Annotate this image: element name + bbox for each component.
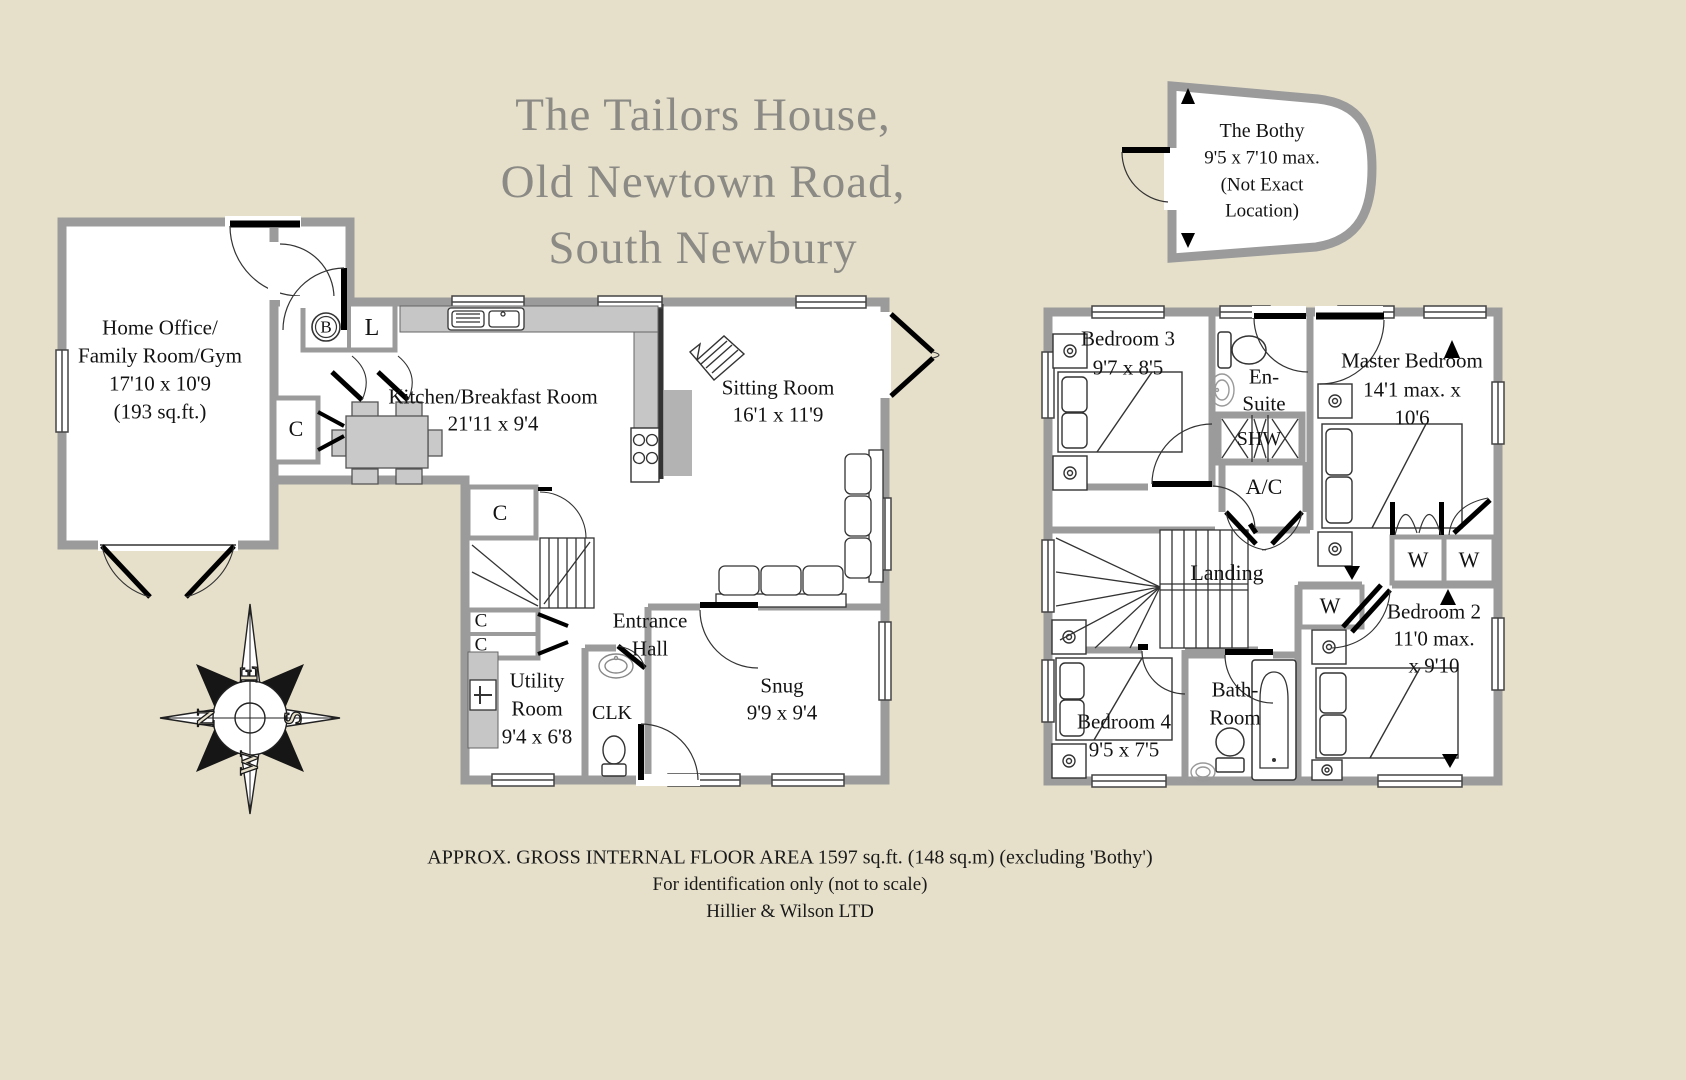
entrance-hall-label: Entrance — [613, 611, 688, 632]
compass-east-label: E — [236, 666, 264, 683]
utility-dims: 9'4 x 6'8 — [502, 727, 573, 748]
property-title-line3: South Newbury — [548, 221, 857, 275]
home-office-label: Family Room/Gym — [78, 346, 242, 367]
home-office-label: Home Office/ — [102, 318, 218, 339]
master-bedroom-dims: 10'6 — [1394, 408, 1429, 429]
home-office-area: (193 sq.ft.) — [114, 402, 207, 423]
home-office-dims: 17'10 x 10'9 — [109, 374, 211, 395]
footer-agent-name: Hillier & Wilson LTD — [706, 901, 874, 923]
bedroom4-label: Bedroom 4 — [1077, 712, 1171, 733]
wardrobe-label: W — [1408, 549, 1429, 571]
floorplan-page: The Tailors House, Old Newtown Road, Sou… — [0, 0, 1686, 1080]
snug-dims: 9'9 x 9'4 — [747, 703, 818, 724]
entry-lobby — [274, 222, 350, 306]
chimney-breast — [664, 390, 692, 476]
toilet-icon — [1216, 728, 1244, 772]
washer-icon — [470, 680, 496, 710]
bothy-name: The Bothy — [1220, 121, 1305, 141]
bothy-note1: (Not Exact — [1221, 176, 1304, 195]
property-title-line1: The Tailors House, — [515, 88, 890, 142]
bathroom-label: Bath- — [1212, 680, 1259, 701]
bothy-dims: 9'5 x 7'10 max. — [1204, 149, 1320, 168]
sofa2-icon — [845, 450, 883, 582]
sitting-room-dims: 16'1 x 11'9 — [733, 405, 824, 426]
bedroom2-label: Bedroom 2 — [1387, 602, 1481, 623]
airing-cupboard-label: A/C — [1246, 476, 1283, 498]
sink-icon — [448, 308, 524, 330]
kitchen-counter — [400, 306, 658, 332]
bedroom3-label: Bedroom 3 — [1081, 329, 1175, 350]
wardrobe-label: W — [1320, 595, 1341, 617]
bothy-door-gap — [1164, 148, 1177, 210]
master-bedroom-label: Master Bedroom — [1341, 351, 1483, 372]
larder-label: L — [365, 316, 380, 340]
toilet-icon — [602, 736, 626, 776]
utility-label: Utility — [510, 671, 565, 692]
bothy-note2: Location) — [1225, 202, 1299, 221]
property-title-line2: Old Newtown Road, — [501, 155, 906, 209]
compass-south-label: S — [280, 711, 308, 725]
hob-icon — [631, 428, 659, 482]
cloakroom-label: CLK — [592, 703, 632, 723]
ensuite-label: En- — [1249, 367, 1279, 388]
footer-disclaimer: For identification only (not to scale) — [653, 874, 928, 896]
landing-label: Landing — [1190, 562, 1263, 584]
kitchen-label: Kitchen/Breakfast Room — [388, 387, 597, 408]
cupboard-label: C — [475, 612, 488, 631]
utility-label: Room — [511, 699, 562, 720]
kitchen-dims: 21'11 x 9'4 — [448, 414, 539, 435]
cupboard-label: C — [289, 418, 304, 440]
sitting-room-label: Sitting Room — [722, 378, 835, 399]
compass-west-label: W — [236, 751, 264, 776]
footer-area-note: APPROX. GROSS INTERNAL FLOOR AREA 1597 s… — [427, 847, 1152, 870]
compass-rose-icon — [160, 604, 340, 814]
cupboard-label: C — [475, 636, 488, 655]
basin-icon — [599, 654, 633, 678]
cupboard-label: C — [493, 502, 508, 524]
shower-label: SHW — [1237, 429, 1281, 449]
ensuite-label: Suite — [1242, 394, 1285, 415]
bedroom3-dims: 9'7 x 8'5 — [1093, 358, 1164, 379]
entrance-hall-label: Hall — [632, 639, 668, 660]
compass-north-label: N — [193, 709, 221, 727]
master-bedroom-dims: 14'1 max. x — [1363, 380, 1461, 401]
bedroom2-dims: 11'0 max. — [1393, 629, 1474, 650]
bothy-outbuilding — [1122, 86, 1372, 258]
sofa-icon — [716, 566, 846, 607]
boiler-label: B — [320, 319, 331, 336]
wardrobe-label: W — [1459, 549, 1480, 571]
snug-label: Snug — [760, 676, 803, 697]
bedroom2-dims: x 9'10 — [1408, 656, 1459, 677]
bathroom-label: Room — [1209, 708, 1260, 729]
bedroom4-dims: 9'5 x 7'5 — [1089, 740, 1160, 761]
